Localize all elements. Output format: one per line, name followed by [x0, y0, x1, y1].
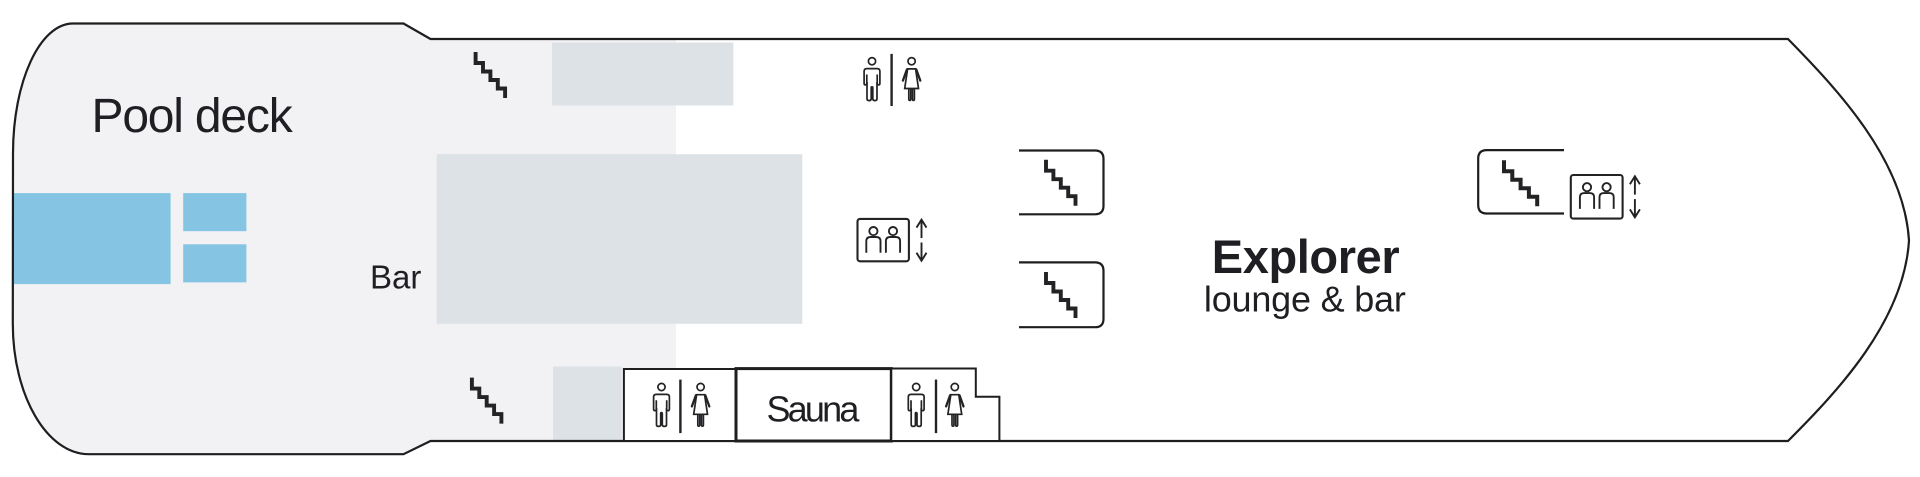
- svg-text:Bar: Bar: [370, 259, 421, 296]
- svg-text:Explorer: Explorer: [1212, 230, 1400, 283]
- svg-text:Pool deck: Pool deck: [92, 90, 294, 143]
- svg-text:lounge & bar: lounge & bar: [1204, 279, 1406, 320]
- svg-text:Sauna: Sauna: [766, 388, 860, 429]
